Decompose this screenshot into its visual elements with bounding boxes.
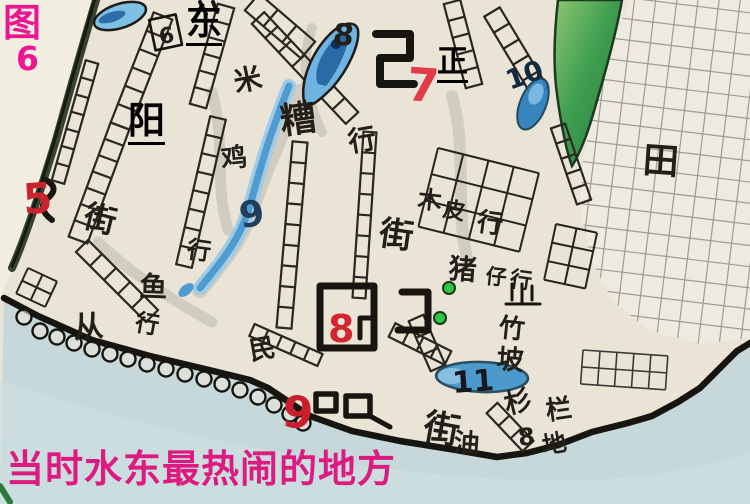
- figure-6-shuidong-map: 687910589118米糟行鸡行街街木皮行猪仔行鱼行从民竹坡杉栏街油地田 图 …: [0, 0, 750, 504]
- map-label-zhu-pig: 猪: [448, 252, 478, 287]
- map-label-pi: 皮: [441, 196, 467, 225]
- map-label-po: 坡: [496, 344, 525, 377]
- map-label-num-11: 11: [451, 363, 495, 401]
- hand-drawn-map: 687910589118米糟行鸡行街街木皮行猪仔行鱼行从民竹坡杉栏街油地田: [0, 0, 750, 504]
- overlay-label-east: 东: [186, 4, 222, 46]
- overlay-label-yang: 阳: [128, 102, 165, 145]
- map-label-di: 地: [540, 428, 568, 460]
- map-label-num-8-market: 8: [328, 307, 354, 351]
- caption-text: 当时水东最热闹的地方: [6, 450, 396, 490]
- map-label-num-8-ground: 8: [517, 422, 537, 452]
- map-label-hang-mizao: 行: [345, 122, 379, 160]
- map-label-yu: 鱼: [139, 270, 168, 304]
- figure-label-number: 6: [16, 42, 39, 77]
- map-label-mu: 木: [415, 185, 444, 216]
- figure-label-char: 图: [3, 4, 41, 44]
- map-label-hang-mupi: 行: [474, 206, 505, 240]
- map-label-zao: 糟: [278, 97, 319, 143]
- map-label-hang-zhuzai: 行: [507, 266, 533, 295]
- map-label-cong: 从: [72, 309, 104, 346]
- map-label-num-5: 5: [21, 173, 54, 224]
- map-label-hang-yu: 行: [132, 308, 161, 340]
- map-label-num-8-top: 8: [331, 17, 355, 54]
- map-label-lan: 栏: [544, 394, 574, 427]
- map-label-jie-central: 街: [376, 213, 416, 257]
- map-label-num-7: 7: [405, 57, 441, 113]
- map-label-you: 油: [453, 428, 481, 460]
- map-label-num-9-coast: 9: [280, 386, 316, 440]
- map-label-zai: 仔: [484, 264, 507, 290]
- overlay-label-zheng: 正: [437, 46, 468, 83]
- map-label-hang-ji: 行: [184, 235, 213, 266]
- map-label-tian: 田: [641, 140, 680, 183]
- map-label-min: 民: [247, 333, 278, 367]
- map-label-zhu-bamboo: 竹: [496, 313, 526, 346]
- map-label-ji: 鸡: [218, 141, 248, 175]
- tree-dot-2: [434, 312, 446, 324]
